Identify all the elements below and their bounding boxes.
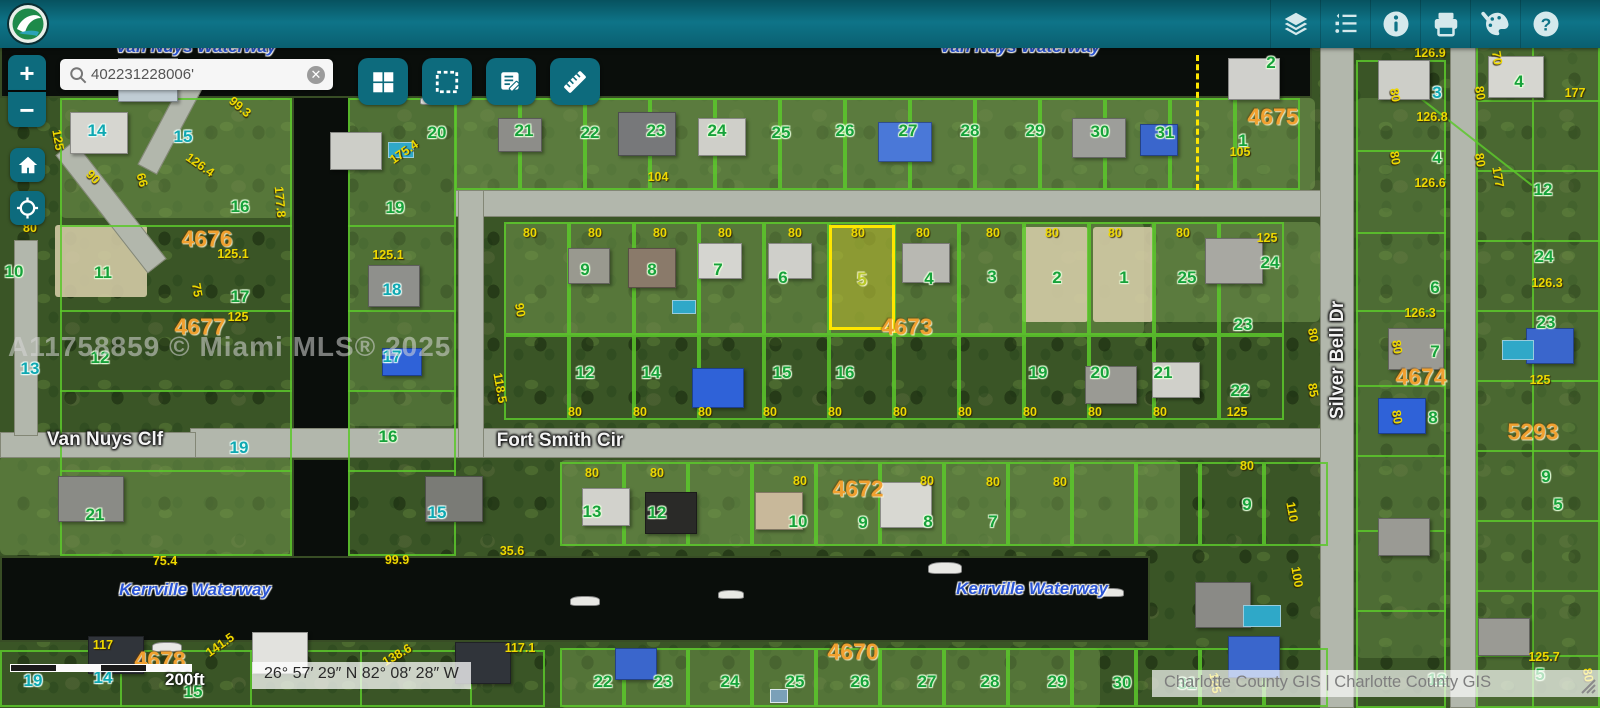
house	[615, 648, 657, 680]
dimension-label: 80	[1472, 85, 1488, 101]
legend-list-icon[interactable]	[1320, 0, 1370, 48]
swimming-pool	[1502, 340, 1534, 360]
lot-number: 21	[86, 505, 105, 525]
search-box: ✕	[60, 59, 333, 90]
dimension-label: 80	[986, 475, 1000, 489]
block-number: 4674	[1395, 364, 1446, 391]
block-number: 4675	[1247, 104, 1298, 131]
boat	[570, 596, 600, 606]
block-number: 4673	[881, 314, 932, 341]
lot-number: 22	[594, 672, 613, 692]
dimension-label: 80	[828, 405, 842, 419]
lot-number: 7	[713, 260, 722, 280]
parcel-line	[60, 225, 292, 227]
lot-number: 21	[1154, 363, 1173, 383]
lot-number: 22	[581, 123, 600, 143]
lot-number: 14	[88, 121, 107, 141]
parcel-cell[interactable]	[1170, 98, 1235, 190]
dimension-label: 125	[1530, 373, 1551, 387]
lot-number: 17	[231, 287, 250, 307]
layers-icon[interactable]	[1270, 0, 1320, 48]
dimension-label: 80	[851, 226, 865, 240]
lot-number: 24	[721, 672, 740, 692]
dimension-label: 105	[1230, 145, 1251, 159]
parcel-block-outline	[1476, 28, 1600, 708]
parcel-line	[1356, 455, 1446, 457]
scale-segment	[11, 665, 56, 671]
report-button[interactable]	[486, 58, 536, 105]
scale-label: 200ft	[165, 670, 205, 690]
clear-search-button[interactable]: ✕	[307, 66, 325, 84]
scale-segment	[101, 665, 146, 671]
scale-segment	[56, 665, 101, 671]
dimension-label: 80	[1387, 150, 1403, 166]
lot-number: 24	[708, 121, 727, 141]
lot-number: 29	[1026, 121, 1045, 141]
parcel-cell[interactable]	[1136, 462, 1200, 546]
lot-number: 23	[654, 672, 673, 692]
dimension-label: 70	[1489, 50, 1505, 66]
parcel-cell[interactable]	[1072, 462, 1136, 546]
attribution-text: Charlotte County GIS | Charlotte County …	[1164, 673, 1491, 691]
zoom-in-button[interactable]: +	[8, 55, 46, 90]
dimension-label: 125.1	[217, 247, 248, 261]
county-logo[interactable]	[6, 2, 50, 46]
parcel-line	[60, 310, 292, 312]
dimension-label: 80	[788, 226, 802, 240]
dimension-label: 75.4	[153, 554, 177, 568]
swimming-pool	[672, 300, 696, 314]
dimension-label: 80	[585, 466, 599, 480]
lot-number: 15	[428, 503, 447, 523]
parcel-cell[interactable]	[504, 335, 569, 420]
street-label: Van Nuys Clf	[47, 429, 163, 451]
lot-number: 31	[1156, 123, 1175, 143]
lot-number: 5	[1553, 495, 1562, 515]
dimension-label: 80	[1053, 475, 1067, 489]
dimension-label: 80	[698, 405, 712, 419]
print-icon[interactable]	[1420, 0, 1470, 48]
measure-button[interactable]	[550, 58, 600, 105]
lot-number: 1	[1119, 268, 1128, 288]
house	[1378, 60, 1430, 100]
dimension-label: 80	[1305, 327, 1321, 343]
lot-number: 2	[1052, 268, 1061, 288]
lot-number: 26	[836, 121, 855, 141]
lot-number: 3	[1432, 83, 1441, 103]
boat	[928, 562, 962, 574]
lot-number: 15	[174, 127, 193, 147]
parcel-cell[interactable]	[780, 98, 845, 190]
lot-number: 19	[1029, 363, 1048, 383]
lot-number: 12	[1534, 180, 1553, 200]
dimension-label: 80	[1472, 152, 1488, 168]
dimension-label: 125	[1227, 405, 1248, 419]
parcel-line	[348, 470, 456, 472]
parcel-line	[1476, 590, 1600, 592]
dimension-label: 85	[1305, 382, 1321, 398]
lot-number: 19	[24, 671, 43, 691]
app-window: Van Nuys WaterwayVan Nuys WaterwayKerrvi…	[0, 0, 1600, 708]
zoom-out-button[interactable]: −	[8, 92, 46, 127]
parcel-line	[60, 470, 292, 472]
dimension-label: 80	[1153, 405, 1167, 419]
search-icon	[69, 66, 87, 84]
dimension-label: 126.9	[1414, 46, 1445, 60]
dimension-label: 126.3	[1404, 306, 1435, 320]
dimension-label: 80	[763, 405, 777, 419]
top-toolbar: ?	[0, 0, 1600, 48]
search-input[interactable]	[87, 66, 307, 83]
lot-number: 9	[1541, 467, 1550, 487]
selected-lot-number: 5	[857, 270, 867, 291]
locate-button[interactable]	[10, 191, 45, 225]
lot-number: 20	[428, 123, 447, 143]
lot-number: 7	[988, 512, 997, 532]
dimension-label: 126.6	[1414, 176, 1445, 190]
mini-map-widget[interactable]	[770, 689, 788, 703]
parcel-line	[348, 390, 456, 392]
parcel-line	[1476, 100, 1600, 102]
dimension-label: 80	[958, 405, 972, 419]
house	[1478, 618, 1530, 656]
lot-number: 20	[1091, 363, 1110, 383]
dimension-label: 80	[893, 405, 907, 419]
parcel-line	[1476, 310, 1600, 312]
parcel-cell[interactable]	[975, 98, 1040, 190]
palette-icon[interactable]	[1470, 0, 1520, 48]
home-button[interactable]	[10, 148, 45, 182]
parcel-line	[1356, 232, 1446, 234]
lot-number: 21	[515, 121, 534, 141]
attribution-bar: Charlotte County GIS | Charlotte County …	[1152, 670, 1600, 697]
mls-watermark: A11758859 © Miami MLS® 2025	[8, 331, 451, 363]
dimension-label: 80	[920, 474, 934, 488]
house	[768, 243, 812, 279]
house	[1378, 518, 1430, 556]
lot-number: 23	[647, 121, 666, 141]
dimension-label: 75	[189, 282, 205, 298]
water-area	[292, 458, 350, 562]
street-label: Silver Bell Dr	[1327, 301, 1349, 419]
dimension-label: 35.6	[500, 544, 524, 558]
svg-text:?: ?	[1540, 14, 1551, 34]
info-icon[interactable]	[1370, 0, 1420, 48]
dimension-label: 80	[1023, 405, 1037, 419]
lot-number: 4	[924, 269, 933, 289]
zoom-control-group: + −	[8, 55, 46, 127]
block-number: 4670	[827, 639, 878, 666]
dimension-label: 126.8	[1416, 110, 1447, 124]
dimension-label: 177.8	[272, 186, 289, 218]
lot-number: 25	[772, 123, 791, 143]
lot-number: 28	[961, 121, 980, 141]
dimension-label: 80	[1045, 226, 1059, 240]
parcel-line	[1356, 610, 1446, 612]
lot-number: 3	[987, 267, 996, 287]
dimension-label: 80	[986, 226, 1000, 240]
lot-number: 14	[642, 363, 661, 383]
lot-number: 12	[648, 503, 667, 523]
block-number: 5293	[1507, 419, 1558, 446]
lot-number: 22	[1231, 381, 1250, 401]
lot-number: 25	[786, 672, 805, 692]
lot-number: 24	[1261, 253, 1280, 273]
lot-number: 29	[1048, 672, 1067, 692]
dimension-label: 125.7	[1528, 650, 1559, 664]
county-logo-icon	[6, 2, 50, 46]
parcel-line	[60, 390, 292, 392]
lot-number: 9	[858, 513, 867, 533]
lot-number: 26	[851, 672, 870, 692]
lot-number: 18	[383, 280, 402, 300]
lot-number: 8	[1428, 408, 1437, 428]
lot-number: 13	[583, 502, 602, 522]
dimension-label: 80	[588, 226, 602, 240]
dimension-label: 80	[718, 226, 732, 240]
lot-number: 6	[1430, 278, 1439, 298]
lot-number: 16	[836, 363, 855, 383]
dimension-label: 80	[916, 226, 930, 240]
lot-number: 12	[576, 363, 595, 383]
dimension-label: 80	[1387, 87, 1403, 103]
parcel-cell[interactable]	[1200, 462, 1264, 546]
road	[455, 190, 1327, 217]
boat	[718, 590, 744, 599]
lot-number: 24	[1535, 247, 1554, 267]
dimension-label: 80	[1240, 459, 1254, 473]
lot-number: 4	[1432, 148, 1441, 168]
crosshair-icon	[16, 196, 39, 220]
lot-number: 10	[789, 512, 808, 532]
lot-number: 30	[1113, 673, 1132, 693]
basemap-grid-button[interactable]	[358, 58, 408, 105]
lot-number: 11	[94, 263, 112, 283]
parcel-cell[interactable]	[688, 462, 752, 546]
lot-number: 25	[1178, 268, 1197, 288]
house	[1205, 238, 1263, 284]
dimension-label: 100	[1288, 566, 1305, 589]
dimension-label: 125	[1257, 231, 1278, 245]
dimension-label: 90	[512, 302, 528, 318]
dimension-label: 177	[1565, 86, 1586, 100]
dimension-label: 99.9	[385, 553, 409, 567]
lot-number: 10	[5, 262, 24, 282]
lot-number: 16	[379, 427, 398, 447]
lot-number: 4	[1514, 72, 1523, 92]
waterway-label: Kerrville Waterway	[119, 580, 271, 600]
dimension-label: 80	[568, 405, 582, 419]
lot-number: 16	[231, 197, 250, 217]
dimension-label: 80	[1389, 339, 1405, 355]
lot-number: 8	[923, 512, 932, 532]
house	[330, 132, 382, 170]
dimension-label: 117.1	[505, 641, 536, 655]
dimension-label: 80	[523, 226, 537, 240]
lot-number: 6	[778, 268, 787, 288]
lot-number: 8	[647, 260, 656, 280]
dimension-label: 125	[228, 310, 249, 324]
lot-number: 2	[1266, 53, 1275, 73]
lot-number: 9	[1242, 495, 1251, 515]
lot-number: 19	[386, 198, 405, 218]
dimension-label: 80	[793, 474, 807, 488]
dimension-label: 80	[1389, 409, 1405, 425]
swimming-pool	[1243, 605, 1281, 627]
resize-handle-icon[interactable]	[1578, 676, 1596, 694]
help-icon[interactable]: ?	[1520, 0, 1570, 48]
lot-number: 27	[899, 121, 918, 141]
cursor-coordinates: 26° 57′ 29″ N 82° 08′ 28″ W	[252, 662, 471, 689]
block-number: 4672	[832, 476, 883, 503]
dimension-label: 125.1	[372, 248, 403, 262]
lot-number: 15	[773, 363, 792, 383]
dimension-label: 80	[633, 405, 647, 419]
map-tool-group	[358, 58, 600, 105]
dimension-label: 126.3	[1531, 276, 1562, 290]
parcel-line	[1476, 450, 1600, 452]
dimension-label: 80	[650, 466, 664, 480]
dimension-label: 80	[653, 226, 667, 240]
lot-number: 7	[1430, 342, 1439, 362]
home-icon	[17, 154, 39, 176]
dimension-label: 117	[93, 638, 113, 652]
dimension-label: 80	[1176, 226, 1190, 240]
select-marquee-button[interactable]	[422, 58, 472, 105]
lot-number: 19	[230, 438, 249, 458]
lot-number: 9	[580, 260, 589, 280]
street-label: Fort Smith Cir	[497, 430, 624, 452]
parcel-line	[348, 225, 456, 227]
lot-number: 23	[1537, 313, 1556, 333]
waterway-label: Kerrville Waterway	[956, 579, 1108, 599]
dimension-label: 80	[1108, 226, 1122, 240]
dimension-label: 80	[1088, 405, 1102, 419]
parcel-line	[1476, 520, 1600, 522]
survey-dashed-line	[1196, 55, 1199, 190]
parcel-line	[348, 310, 456, 312]
lot-number: 27	[918, 672, 937, 692]
lot-number: 28	[981, 672, 1000, 692]
topbar-icon-group: ?	[1270, 0, 1570, 48]
dimension-label: 104	[648, 170, 669, 184]
parcel-line	[1476, 240, 1600, 242]
lot-number: 23	[1234, 315, 1253, 335]
road	[458, 190, 484, 458]
lot-number: 30	[1091, 122, 1110, 142]
house	[692, 368, 744, 408]
parcel-line	[1532, 28, 1534, 708]
